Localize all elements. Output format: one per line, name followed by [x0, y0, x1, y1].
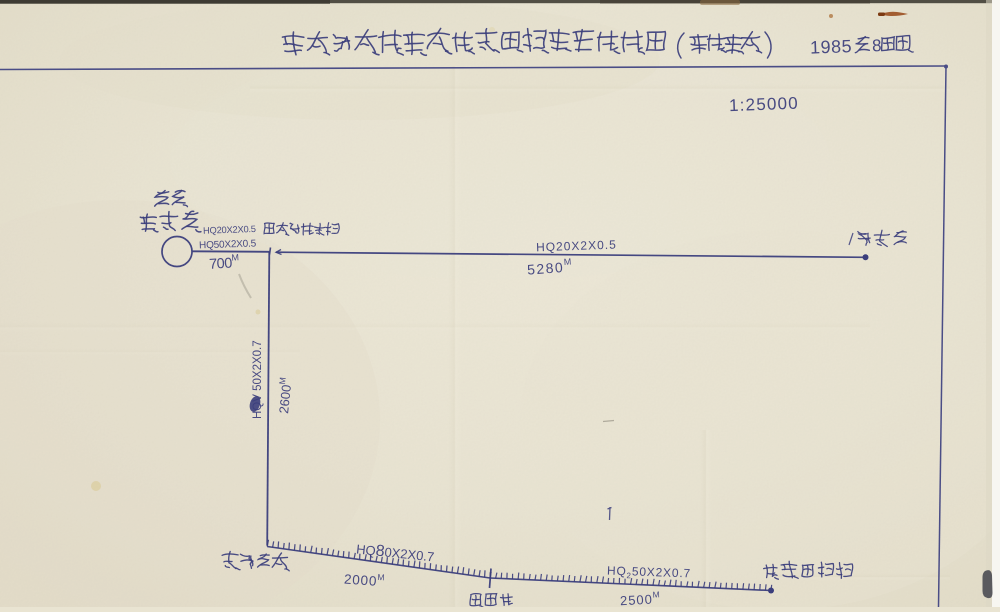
svg-text:HQ50X2X0.5: HQ50X2X0.5	[199, 238, 257, 251]
svg-text:HQ20X2X0.5: HQ20X2X0.5	[536, 238, 617, 255]
svg-text:HQ20X2X0.5: HQ20X2X0.5	[203, 224, 256, 236]
svg-text:1:25000: 1:25000	[729, 94, 799, 115]
svg-text:1985: 1985	[810, 36, 853, 57]
svg-text:8: 8	[872, 36, 882, 55]
